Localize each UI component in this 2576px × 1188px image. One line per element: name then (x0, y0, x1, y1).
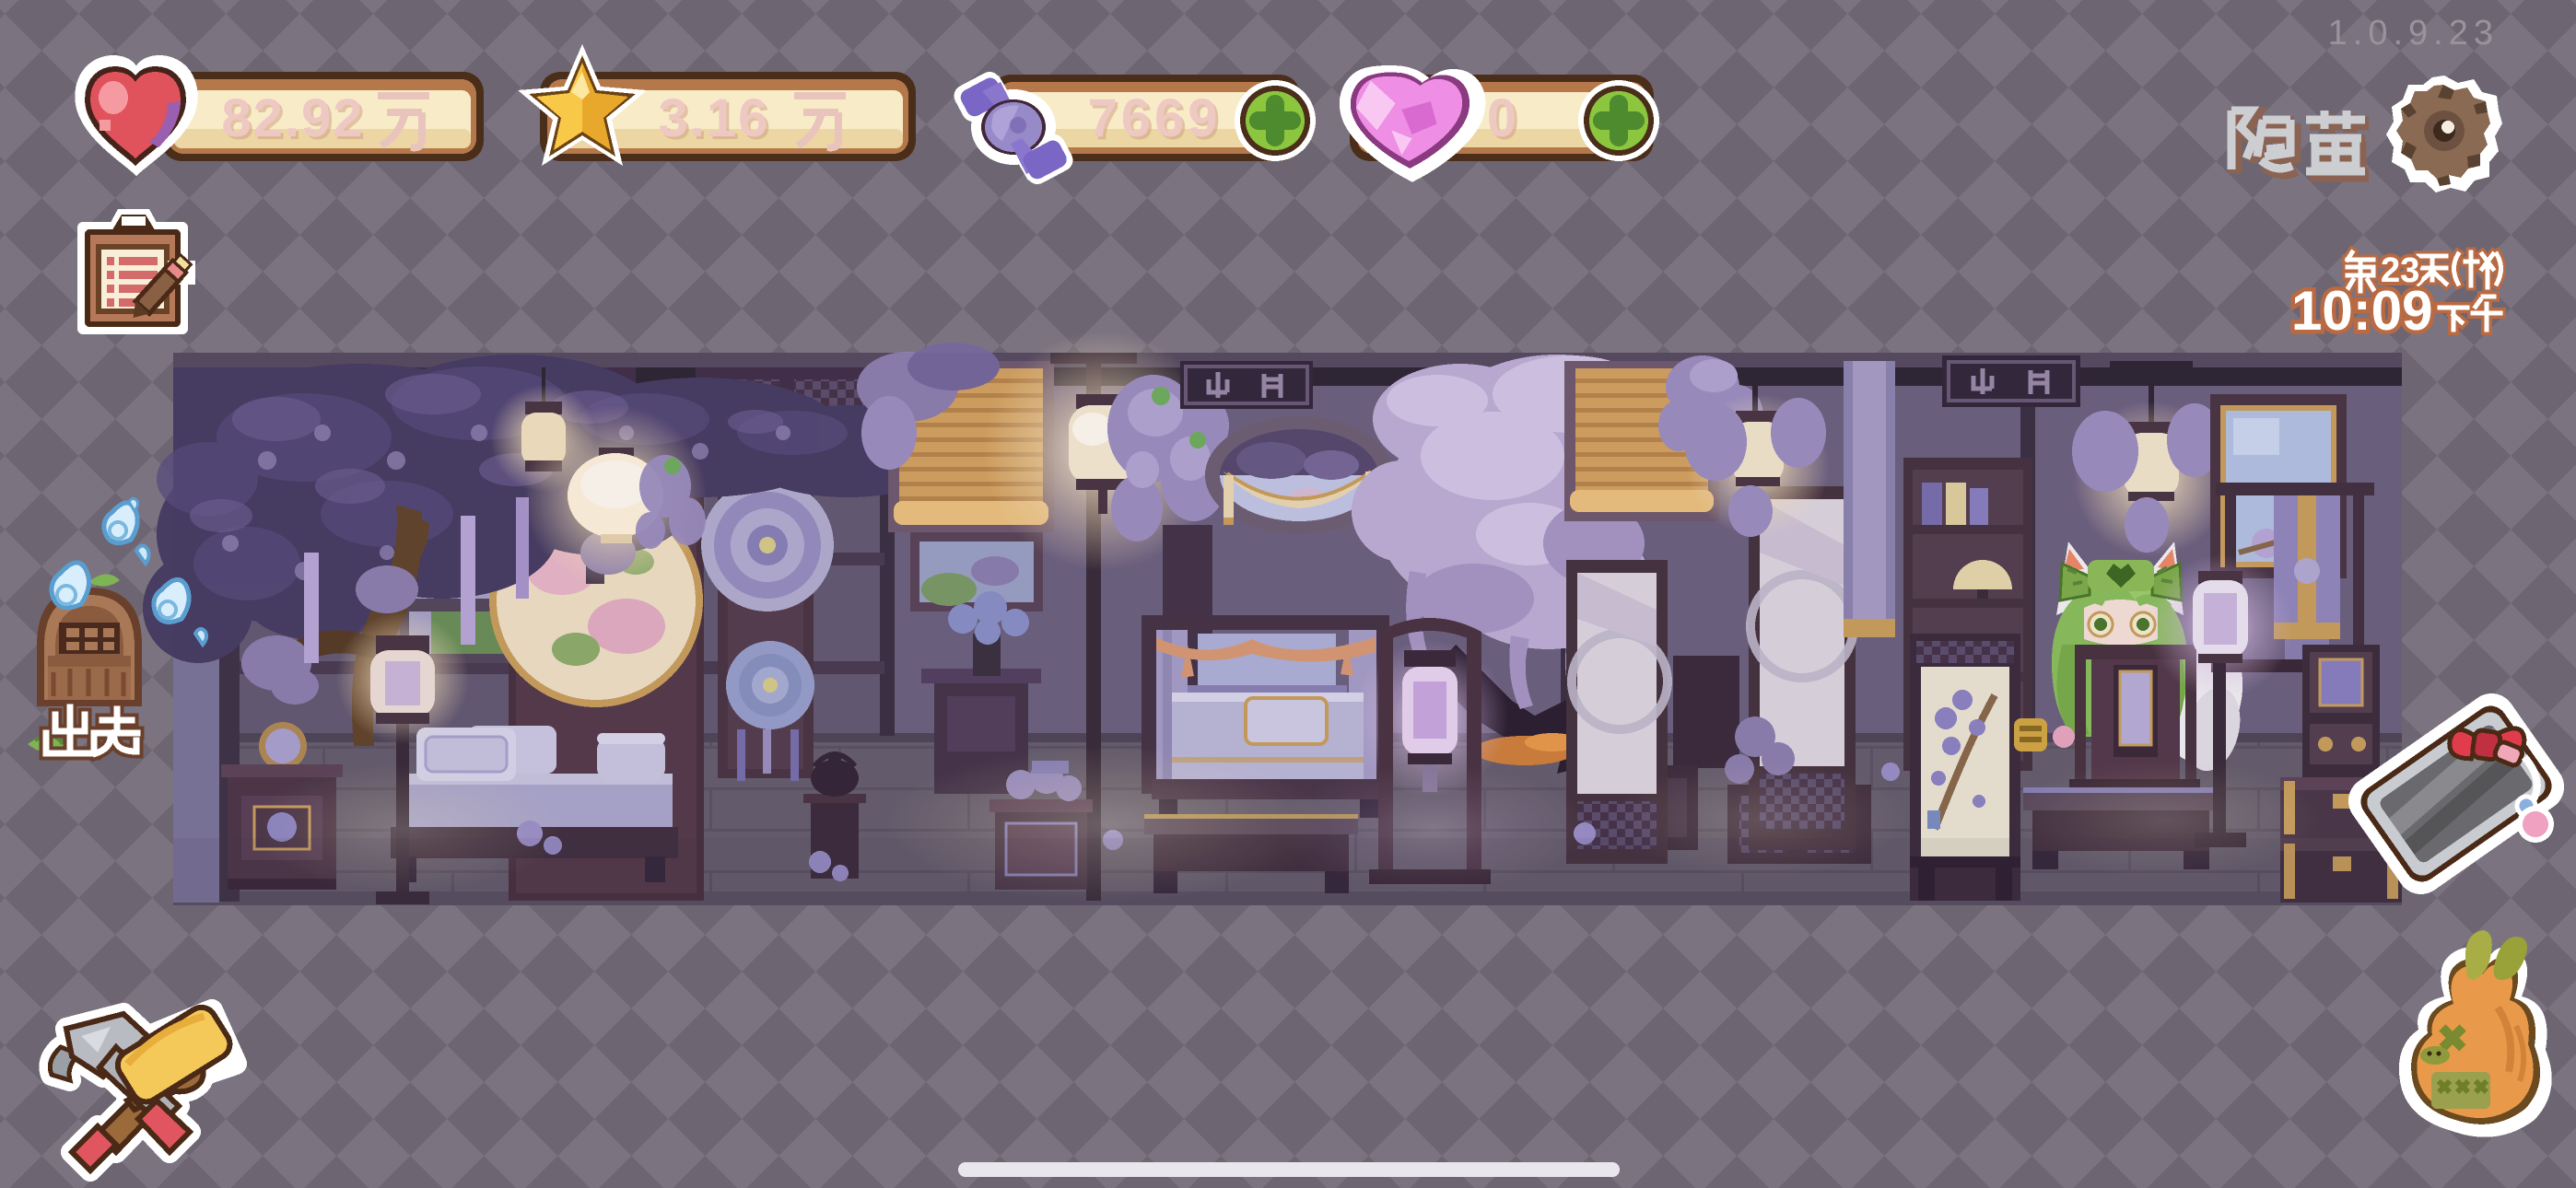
svg-text:7669: 7669 (1087, 88, 1221, 148)
svg-text:10:09: 10:09 (2291, 280, 2432, 342)
svg-text:0: 0 (1487, 88, 1516, 148)
svg-text:82.92: 82.92 (221, 88, 364, 148)
svg-text:3.16: 3.16 (659, 88, 770, 148)
svg-text:1.0.9.23: 1.0.9.23 (2328, 14, 2499, 52)
